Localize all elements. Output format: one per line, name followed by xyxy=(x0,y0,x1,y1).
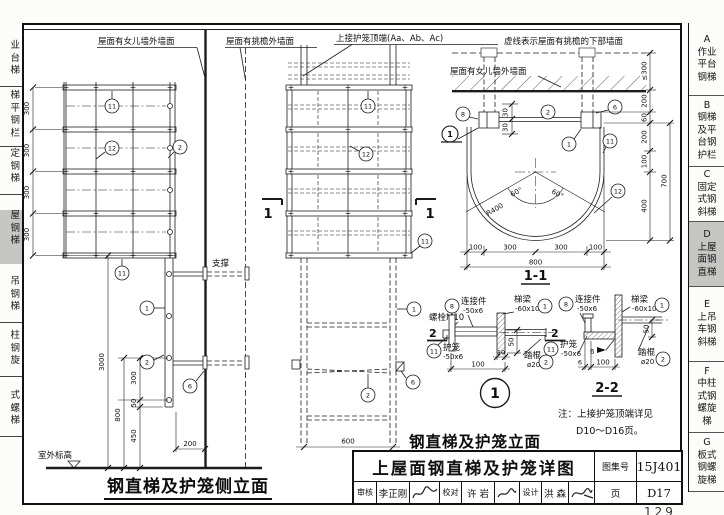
detail-number-1: 1 xyxy=(490,386,500,402)
callout-2: 2 xyxy=(178,143,182,151)
callout-11: 11 xyxy=(421,237,429,245)
section-mark-1: 1 xyxy=(425,207,434,222)
callout-1: 1 xyxy=(145,304,149,312)
label-cage-top: 上接护笼顶端(Aa、Ab、Ac) xyxy=(336,33,443,44)
signature-scribble xyxy=(411,485,439,501)
dim-50: 50 xyxy=(508,338,516,347)
dim-300: 300 xyxy=(23,228,31,241)
dim-300: 300 xyxy=(23,186,31,199)
dim-300: 300 xyxy=(23,102,31,115)
label-50x6: -50x6 xyxy=(577,305,598,313)
dim-10: 10 xyxy=(497,349,505,357)
atlas-number: 15J401 xyxy=(636,452,681,481)
callout-11: 11 xyxy=(430,347,438,355)
dim-300: 300 xyxy=(554,244,567,252)
callout-2: 2 xyxy=(366,391,370,399)
dim-300: 300 xyxy=(503,244,516,252)
proof-signature xyxy=(494,482,519,503)
callout-8: 8 xyxy=(450,302,454,310)
note-line-2: D10～D16页。 xyxy=(576,426,643,437)
atlas-page: 业 台 梯 梯 平 钢 栏 定 钢 梯 屋 钢 梯 吊 钢 梯 柱 钢 旋 式 … xyxy=(0,0,724,515)
atlas-number-label: 图集号 xyxy=(594,452,636,481)
label-cage: 护笼 xyxy=(443,342,461,353)
label-60x10: -60x10 xyxy=(515,305,539,313)
section-mark-1: 1 xyxy=(263,207,272,222)
technical-drawing: 屋面有女儿墙外墙面 屋面有挑檐外墙面 上接护笼顶端(Aa、Ab、Ac) 虚线表示… xyxy=(0,0,724,515)
note-line-1: 注：上接护笼顶端详见 xyxy=(558,408,653,420)
dim-3000: 3000 xyxy=(98,353,106,371)
angle-60: 60° xyxy=(509,186,524,199)
dim-6: 6 xyxy=(578,359,582,367)
label-support: 支撑 xyxy=(212,258,230,269)
design-signature xyxy=(568,482,594,503)
callout-8: 8 xyxy=(461,110,465,118)
section-title-2-2: 2-2 xyxy=(595,381,619,396)
dim-600: 600 xyxy=(341,438,354,446)
callout-8: 8 xyxy=(564,300,568,308)
dim-200: 200 xyxy=(641,94,649,107)
callout-6: 6 xyxy=(188,382,192,390)
dim-300: 300 xyxy=(23,144,31,157)
dim-50: 50 xyxy=(130,399,138,408)
design-name: 洪 森 xyxy=(541,482,568,503)
callout-12: 12 xyxy=(614,187,622,195)
dim-300: 300 xyxy=(130,371,138,384)
design-label: 设计 xyxy=(519,482,541,503)
note: 注：上接护笼顶端详见 D10～D16页。 xyxy=(558,408,653,437)
top-labels: 屋面有女儿墙外墙面 屋面有挑檐外墙面 上接护笼顶端(Aa、Ab、Ac) 虚线表示… xyxy=(97,33,624,80)
callout-2: 2 xyxy=(145,358,149,366)
proof-label: 校对 xyxy=(439,482,461,503)
callout-12: 12 xyxy=(362,150,370,158)
support-brackets xyxy=(173,267,249,369)
callout-11: 11 xyxy=(364,102,372,110)
callout-1: 1 xyxy=(543,302,547,310)
plan-section-1-1: 屋面有女儿墙外墙面 30 30 xyxy=(441,48,674,284)
signature-scribble xyxy=(570,485,594,501)
dim-400: 400 xyxy=(641,199,649,212)
label-50x6: -50x6 xyxy=(561,350,582,358)
label-connector: 连接件 xyxy=(575,294,601,305)
angle-60: 60° xyxy=(550,188,565,201)
callout-12: 12 xyxy=(108,144,116,152)
side-elevation: 支撑 300 300 300 300 xyxy=(23,30,262,471)
callout-2: 2 xyxy=(661,355,665,363)
title-block: 上屋面钢直梯及护笼详图 图集号 15J401 审核 李正刚 校对 许 岩 设计 … xyxy=(352,450,683,505)
dim-700: 700 xyxy=(661,174,669,187)
label-dashed-wall-note: 虚线表示屋面有挑檐的下部墙面 xyxy=(504,36,624,47)
dim-200: 200 xyxy=(641,130,649,143)
callout-2: 2 xyxy=(544,358,548,366)
dim-100: 100 xyxy=(641,155,649,168)
proof-name: 许 岩 xyxy=(461,482,494,503)
sheet-title: 上屋面钢直梯及护笼详图 xyxy=(354,452,594,481)
label-stringer: 梯梁 xyxy=(631,294,649,305)
dim-le300: ≤300 xyxy=(641,61,649,80)
dim-800: 800 xyxy=(529,259,542,267)
callout-11: 11 xyxy=(108,102,116,110)
dim-100: 100 xyxy=(589,244,602,252)
side-callouts: 11 12 2 11 1 2 6 xyxy=(96,91,204,393)
radius-r400: R400 xyxy=(485,202,505,218)
dim-100: 100 xyxy=(469,244,482,252)
section-title-1-1: 1-1 xyxy=(524,269,548,284)
label-50x6: -50x6 xyxy=(443,353,464,361)
label-connector: 连接件 xyxy=(461,296,487,307)
callout-11: 11 xyxy=(606,137,614,145)
callout-1: 1 xyxy=(412,305,416,313)
side-elevation-title: 钢直梯及护笼侧立面 xyxy=(104,472,272,500)
dim-100: 100 xyxy=(471,361,484,369)
label-phi20: ø20 xyxy=(527,361,540,369)
label-rung: 踏棍 xyxy=(638,347,656,358)
callout-6: 6 xyxy=(411,378,415,386)
cut-mark-2: 2 xyxy=(551,327,559,340)
callout-1: 1 xyxy=(567,140,571,148)
dim-100: 100 xyxy=(596,359,609,367)
section-2-2: 8 连接件 -50x6 梯梁 -60x10 1 11 护笼 -50x6 6 xyxy=(544,294,670,396)
dim-200: 200 xyxy=(183,440,196,448)
book-page-number-partial: 129 xyxy=(644,505,676,515)
front-callouts: 11 12 11 1 6 2 xyxy=(350,91,432,402)
label-phi20: ø20 xyxy=(641,358,654,366)
dim-60: 60 xyxy=(641,113,649,122)
label-outdoor-level: 室外标高 xyxy=(38,450,72,461)
label-60x10: -60x10 xyxy=(632,305,656,313)
review-signature xyxy=(409,482,439,503)
detail-bubble-1: 1 xyxy=(447,130,453,139)
callout-11: 11 xyxy=(547,345,555,353)
front-elevation: 1 1 600 11 12 11 1 6 2 xyxy=(262,45,436,450)
label-bolt-m10: 螺栓M10 xyxy=(429,312,464,323)
dim-30: 30 xyxy=(502,123,510,132)
label-parapet-wall-plan: 屋面有女儿墙外墙面 xyxy=(450,66,527,77)
review-label: 审核 xyxy=(354,482,376,503)
label-stringer: 梯梁 xyxy=(514,294,532,305)
title-block-row-main: 上屋面钢直梯及护笼详图 图集号 15J401 xyxy=(354,452,681,482)
review-name: 李正刚 xyxy=(376,482,409,503)
label-parapet-wall: 屋面有女儿墙外墙面 xyxy=(98,36,175,47)
label-eave-wall: 屋面有挑檐外墙面 xyxy=(226,36,295,47)
page-label: 页 xyxy=(594,482,636,503)
dim-30: 30 xyxy=(502,108,510,117)
signature-scribble xyxy=(496,485,518,501)
dim-800: 800 xyxy=(114,408,122,421)
callout-1: 1 xyxy=(660,301,664,309)
callout-6: 6 xyxy=(613,103,617,111)
label-50x6: -50x6 xyxy=(463,307,484,315)
page-number: D17 xyxy=(636,482,681,503)
title-block-row-credits: 审核 李正刚 校对 许 岩 设计 洪 森 页 D17 xyxy=(354,482,681,503)
dim-450: 450 xyxy=(130,429,138,442)
callout-2: 2 xyxy=(546,108,550,116)
cut-mark-2: 2 xyxy=(429,327,437,340)
callout-11: 11 xyxy=(118,269,126,277)
label-cage: 护笼 xyxy=(560,339,578,350)
